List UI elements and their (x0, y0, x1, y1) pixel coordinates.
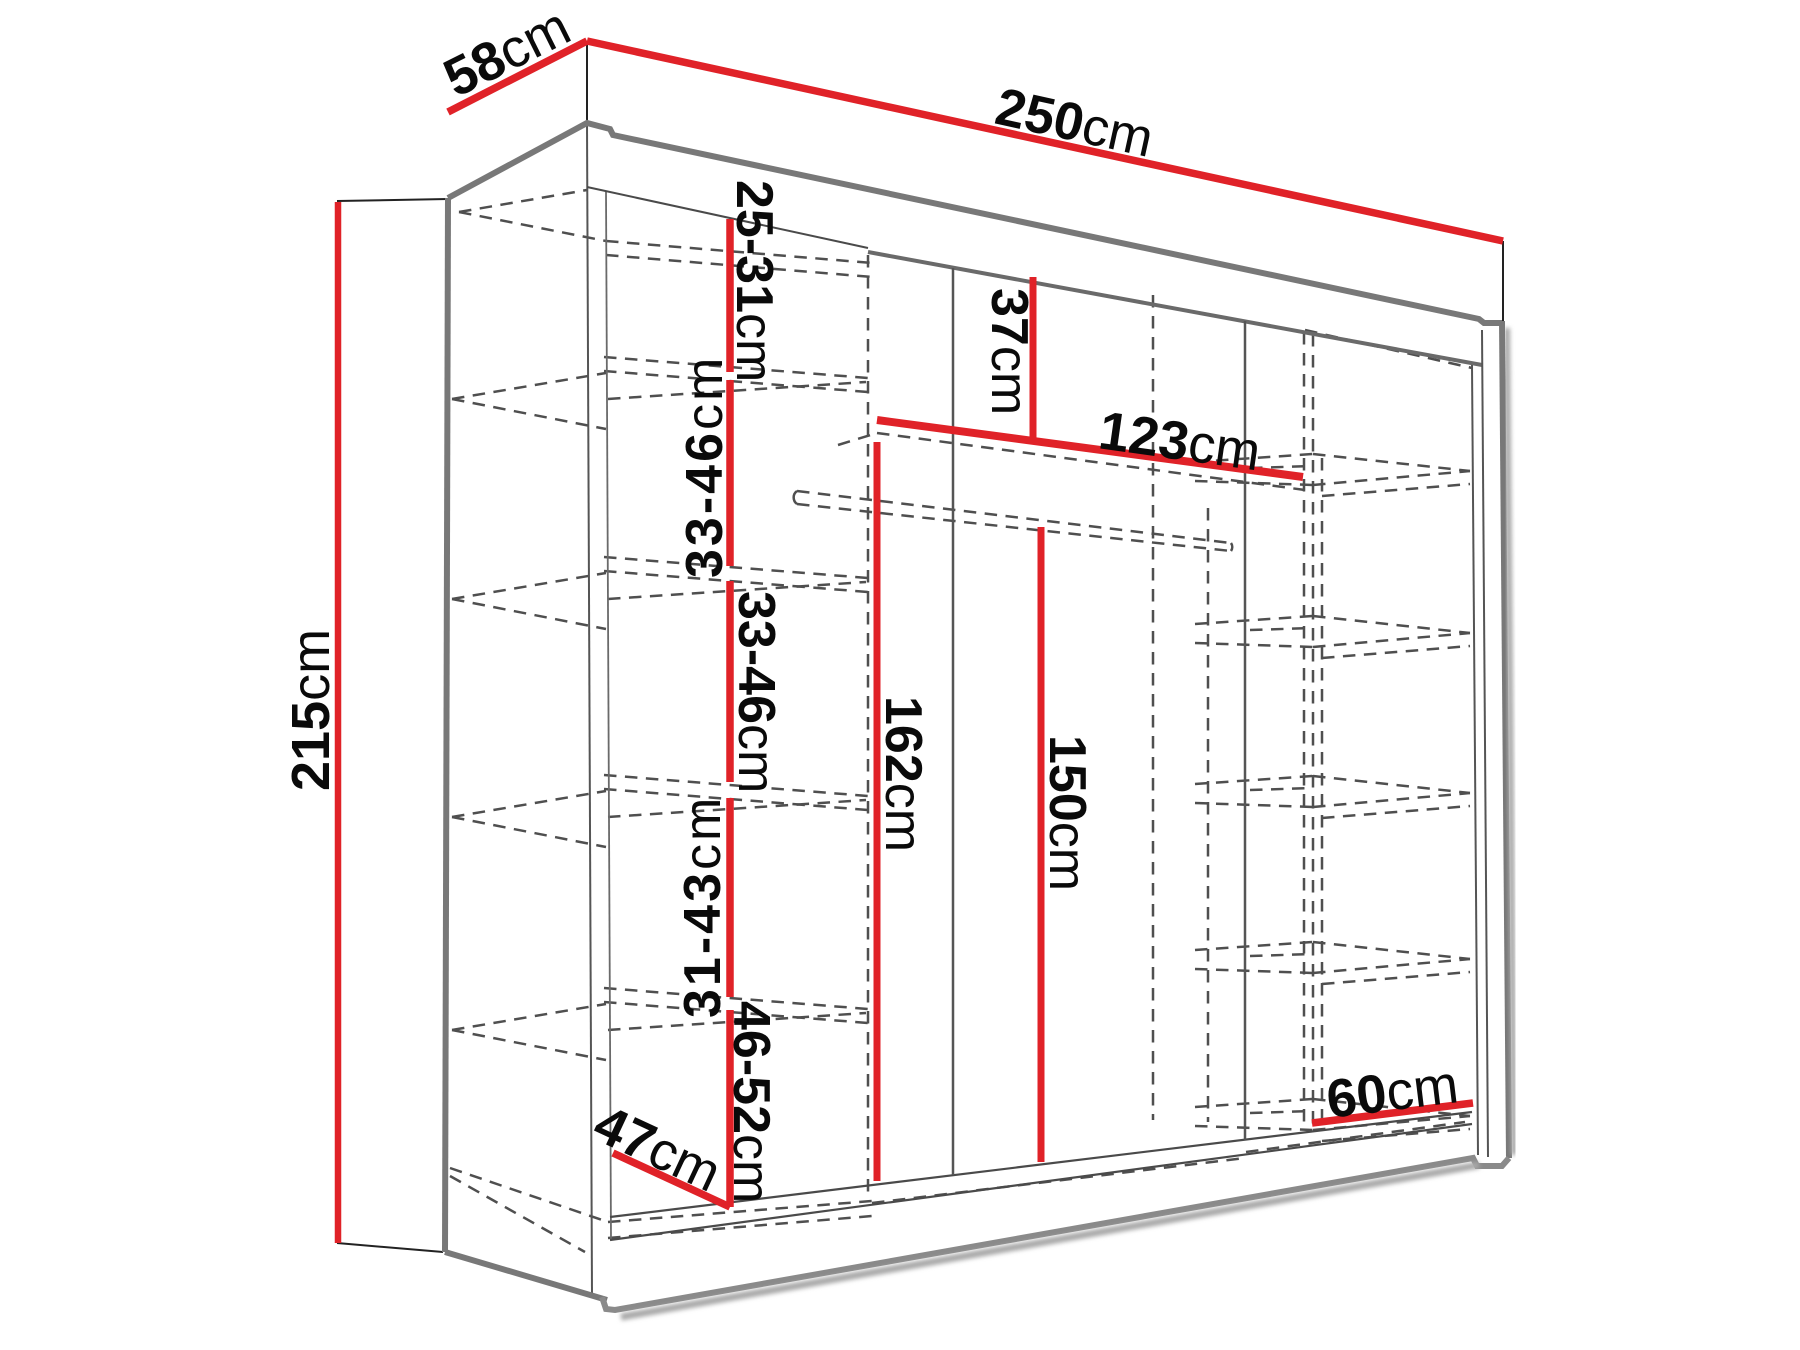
svg-text:150cm: 150cm (1038, 735, 1096, 891)
svg-text:33-46cm: 33-46cm (676, 355, 734, 578)
svg-text:162cm: 162cm (874, 696, 932, 852)
svg-text:37cm: 37cm (980, 288, 1038, 415)
svg-text:25-31cm: 25-31cm (725, 180, 783, 382)
svg-text:46-52cm: 46-52cm (722, 1001, 780, 1203)
svg-text:33-46cm: 33-46cm (727, 591, 785, 793)
svg-text:215cm: 215cm (281, 629, 341, 791)
svg-text:31-43cm: 31-43cm (674, 795, 732, 1018)
